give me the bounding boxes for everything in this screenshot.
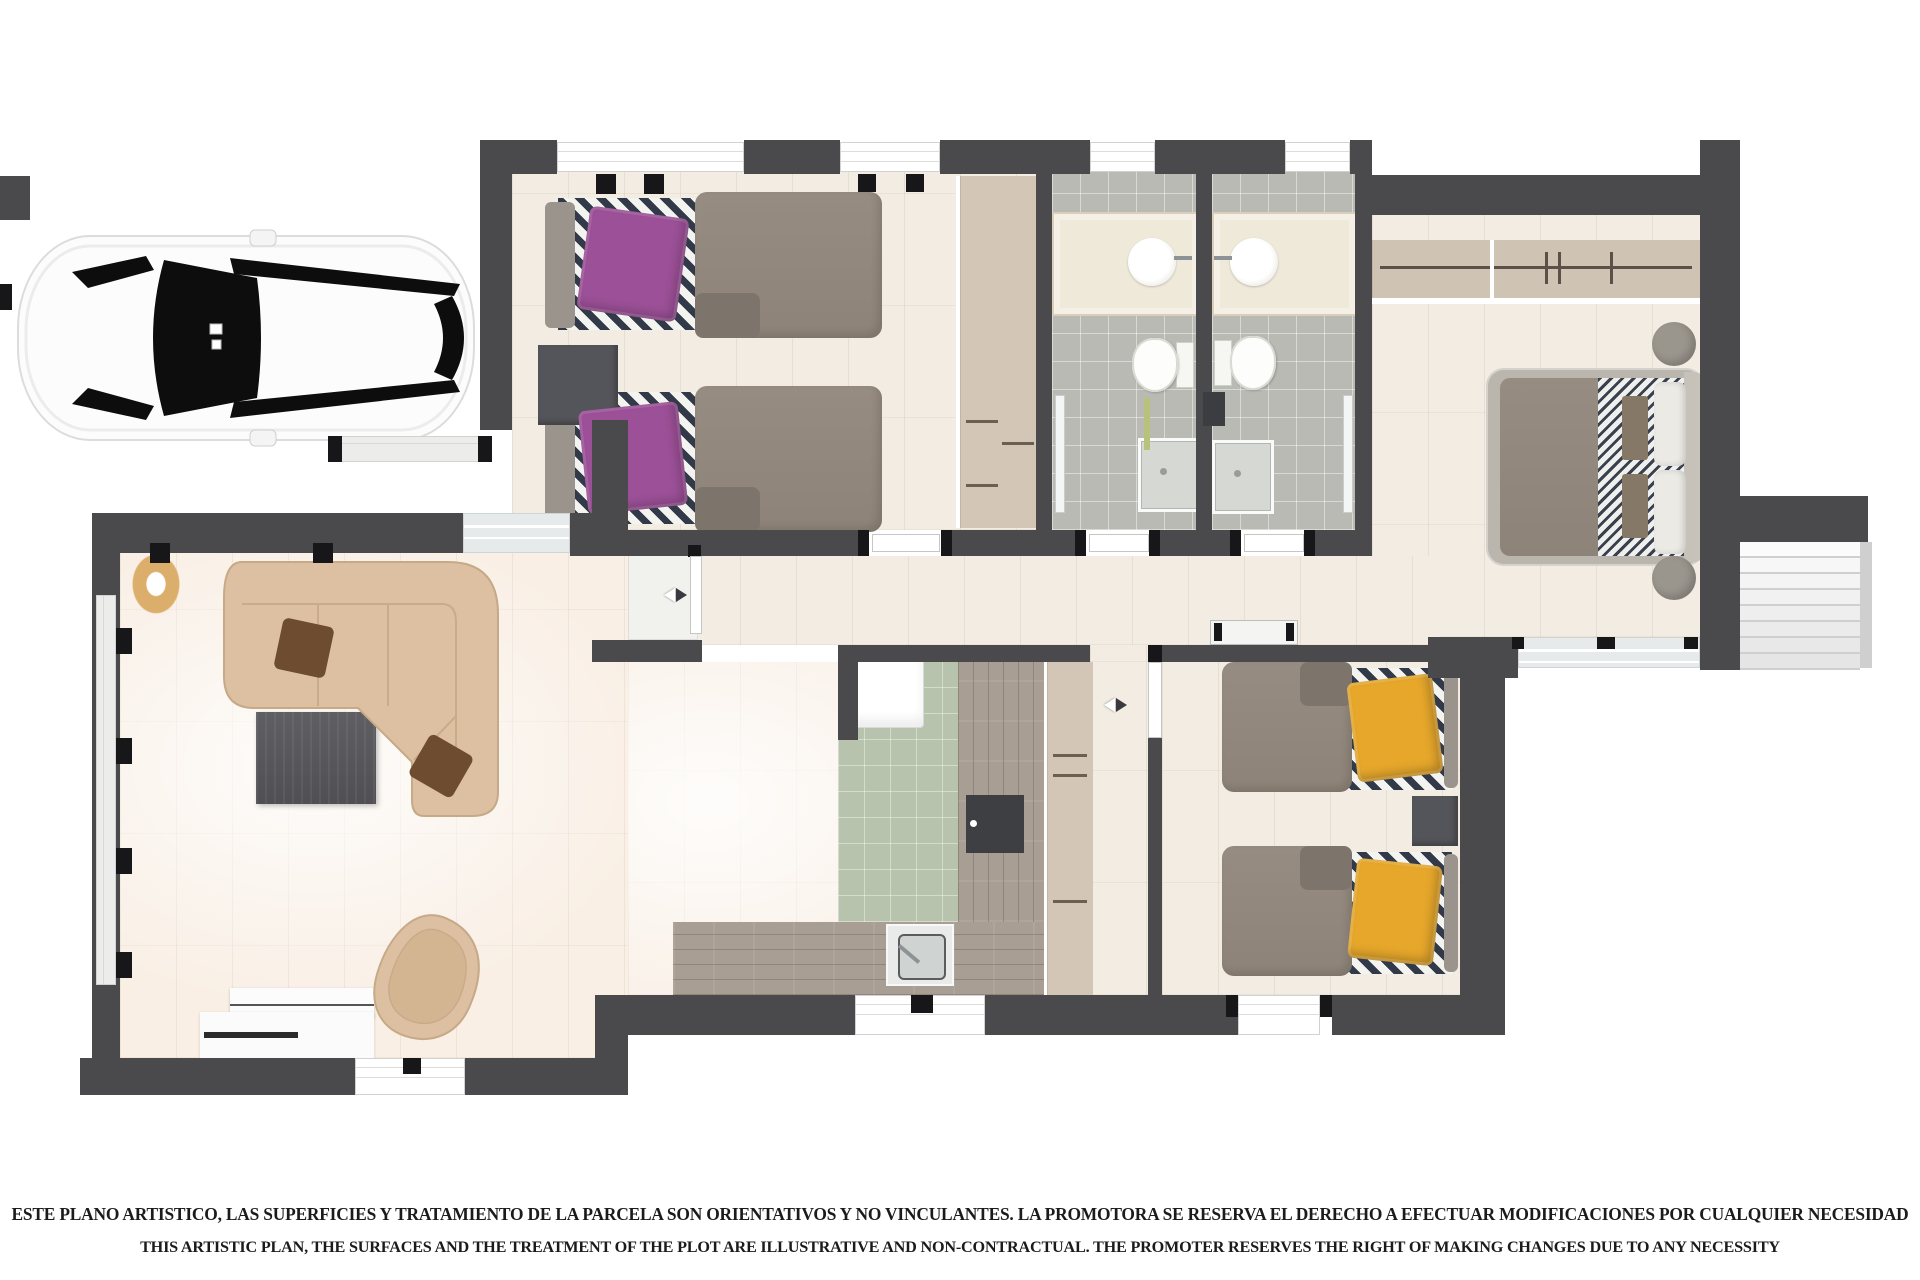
- curtain-mark: [116, 628, 132, 654]
- bed-cushion: [1622, 396, 1648, 460]
- hanger-icon: [1545, 252, 1548, 284]
- shower-glass: [1056, 396, 1064, 512]
- yellow-pillow: [1346, 673, 1444, 783]
- radiator: [1210, 620, 1298, 645]
- bed-duvet-fold: [695, 293, 760, 338]
- corner-sofa: [218, 556, 504, 822]
- wall: [1162, 645, 1460, 662]
- wall: [0, 284, 12, 310]
- wardrobe-handle: [966, 420, 998, 423]
- cabinet-handle: [1053, 774, 1087, 777]
- curtain-mark: [116, 952, 132, 978]
- staircase-stringer: [1860, 542, 1872, 668]
- wall: [0, 176, 30, 220]
- wall: [80, 1058, 355, 1095]
- door-jamb: [1148, 645, 1162, 662]
- shower-drain: [1234, 470, 1241, 477]
- door-swing-icon: [676, 588, 687, 602]
- wall: [628, 530, 868, 556]
- tv-sideboard-edge: [230, 1004, 374, 1006]
- door-jamb: [941, 530, 952, 556]
- wardrobe: [956, 176, 1040, 528]
- window: [1238, 995, 1320, 1035]
- door: [872, 534, 940, 552]
- wall: [1036, 172, 1052, 530]
- curtain-mark: [150, 543, 170, 563]
- curtain-mark: [858, 174, 876, 192]
- radiator-bracket: [1214, 623, 1222, 641]
- bathroom-vanity: [1052, 212, 1200, 316]
- curtain-mark: [313, 543, 333, 563]
- wall: [1332, 995, 1460, 1035]
- window: [1090, 142, 1155, 172]
- purple-pillow: [576, 206, 690, 323]
- wall: [838, 645, 1090, 662]
- wall: [985, 995, 1162, 1035]
- bed-duvet-fold: [695, 487, 760, 532]
- pantry-cabinets: [1044, 662, 1093, 995]
- bed-headboard: [1444, 854, 1458, 972]
- window-jamb: [1320, 995, 1332, 1017]
- window-mullion: [403, 1058, 421, 1074]
- door-swing-icon: [1104, 698, 1115, 712]
- toilet-tank: [1176, 342, 1194, 388]
- window: [840, 142, 940, 172]
- bedroom2-door: [1148, 662, 1162, 738]
- window: [96, 595, 116, 985]
- shower-drain: [1160, 468, 1167, 475]
- curtain-mark: [116, 738, 132, 764]
- terrace-glass-door: [463, 513, 570, 553]
- window: [340, 436, 480, 462]
- floor-plan-image: ESTE PLANO ARTISTICO, LAS SUPERFICIES Y …: [0, 0, 1920, 1280]
- window-mullion: [911, 995, 933, 1013]
- wall: [1155, 140, 1285, 174]
- entry-vestibule-floor: [628, 548, 698, 640]
- hanger-icon: [1610, 252, 1613, 284]
- wall: [592, 640, 702, 662]
- disclaimer-line-english: THIS ARTISTIC PLAN, THE SURFACES AND THE…: [0, 1238, 1920, 1257]
- disclaimer-line-spanish: ESTE PLANO ARTISTICO, LAS SUPERFICIES Y …: [0, 1204, 1920, 1225]
- shower-tray: [1212, 440, 1274, 514]
- wall: [1150, 530, 1240, 556]
- door: [1244, 534, 1304, 552]
- wall: [1460, 645, 1505, 1035]
- shower-glass: [1344, 396, 1352, 512]
- wall: [945, 530, 1085, 556]
- window: [557, 142, 744, 172]
- cabinet-handle: [1053, 900, 1087, 903]
- yellow-pillow: [1347, 858, 1443, 966]
- hallway-floor: [1090, 645, 1148, 662]
- wardrobe-handle: [966, 484, 998, 487]
- curtain-mark: [116, 848, 132, 874]
- bed-cushion: [1622, 474, 1648, 538]
- door-jamb: [1075, 530, 1086, 556]
- window-jamb: [328, 436, 342, 462]
- wall: [1355, 172, 1372, 556]
- hallway-floor: [628, 556, 1440, 645]
- window-jamb: [1684, 637, 1698, 649]
- wall: [465, 1058, 628, 1095]
- wall: [570, 513, 628, 556]
- wall: [1372, 175, 1700, 215]
- bed-duvet-fold: [1300, 846, 1352, 890]
- window-jamb: [1597, 637, 1615, 649]
- cooktop-knob: [970, 820, 977, 827]
- bathroom-sink: [1230, 238, 1278, 286]
- bed-headboard: [545, 202, 575, 328]
- round-rug: [132, 554, 180, 614]
- window-jamb: [1226, 995, 1238, 1017]
- wall: [1350, 140, 1372, 174]
- wall: [1310, 530, 1372, 556]
- round-side-table: [1652, 322, 1696, 366]
- toilet: [1132, 338, 1178, 392]
- bathroom-sink: [1128, 238, 1176, 286]
- door-jamb: [1230, 530, 1241, 556]
- wall: [838, 645, 858, 740]
- window: [1285, 142, 1350, 172]
- wall: [1740, 496, 1868, 542]
- wall: [1196, 172, 1212, 530]
- toilet: [1230, 336, 1276, 390]
- cabinet-handle: [1053, 754, 1087, 757]
- door-jamb: [858, 530, 869, 556]
- closet-rail: [1380, 266, 1692, 269]
- faucet-icon: [1214, 256, 1232, 260]
- wall: [940, 140, 1090, 174]
- window-jamb: [478, 436, 492, 462]
- wall: [1700, 215, 1740, 670]
- wall: [744, 140, 840, 174]
- nightstand: [1412, 796, 1458, 846]
- car-top-view: [14, 226, 480, 450]
- kitchen-counter: [673, 922, 1044, 995]
- wall: [1148, 736, 1162, 995]
- entry-door: [690, 556, 702, 634]
- curtain-mark: [644, 174, 664, 194]
- staircase: [1740, 542, 1860, 668]
- door-swing-icon: [664, 588, 675, 602]
- wall: [628, 995, 855, 1035]
- bed-duvet-fold: [1300, 662, 1352, 706]
- closet-divider: [1490, 240, 1494, 302]
- bed-headboard: [1444, 670, 1458, 788]
- towel-rail: [1203, 392, 1225, 426]
- glass-shelf: [1144, 398, 1150, 450]
- faucet-icon: [1174, 256, 1192, 260]
- door-swing-icon: [1116, 698, 1127, 712]
- wall: [1428, 637, 1518, 678]
- curtain-mark: [596, 174, 616, 194]
- tv-screen: [204, 1032, 298, 1038]
- window-jamb: [1512, 637, 1524, 649]
- round-side-table: [1652, 556, 1696, 600]
- door-jamb: [1304, 530, 1315, 556]
- wardrobe-handle: [1002, 442, 1034, 445]
- kitchen-sink-basin: [898, 934, 946, 980]
- door-jamb: [1149, 530, 1160, 556]
- radiator-bracket: [1286, 623, 1294, 641]
- wall: [92, 513, 463, 553]
- open-closet: [1372, 240, 1700, 302]
- closet-front-edge: [1372, 298, 1700, 304]
- curtain-mark: [906, 174, 924, 192]
- door: [1089, 534, 1149, 552]
- kitchen-wood-floor: [958, 662, 1044, 922]
- hanger-icon: [1558, 252, 1561, 284]
- bed-pillow: [1654, 470, 1686, 554]
- bed-pillow: [1654, 382, 1686, 466]
- wall: [480, 140, 512, 430]
- wall: [1700, 140, 1740, 215]
